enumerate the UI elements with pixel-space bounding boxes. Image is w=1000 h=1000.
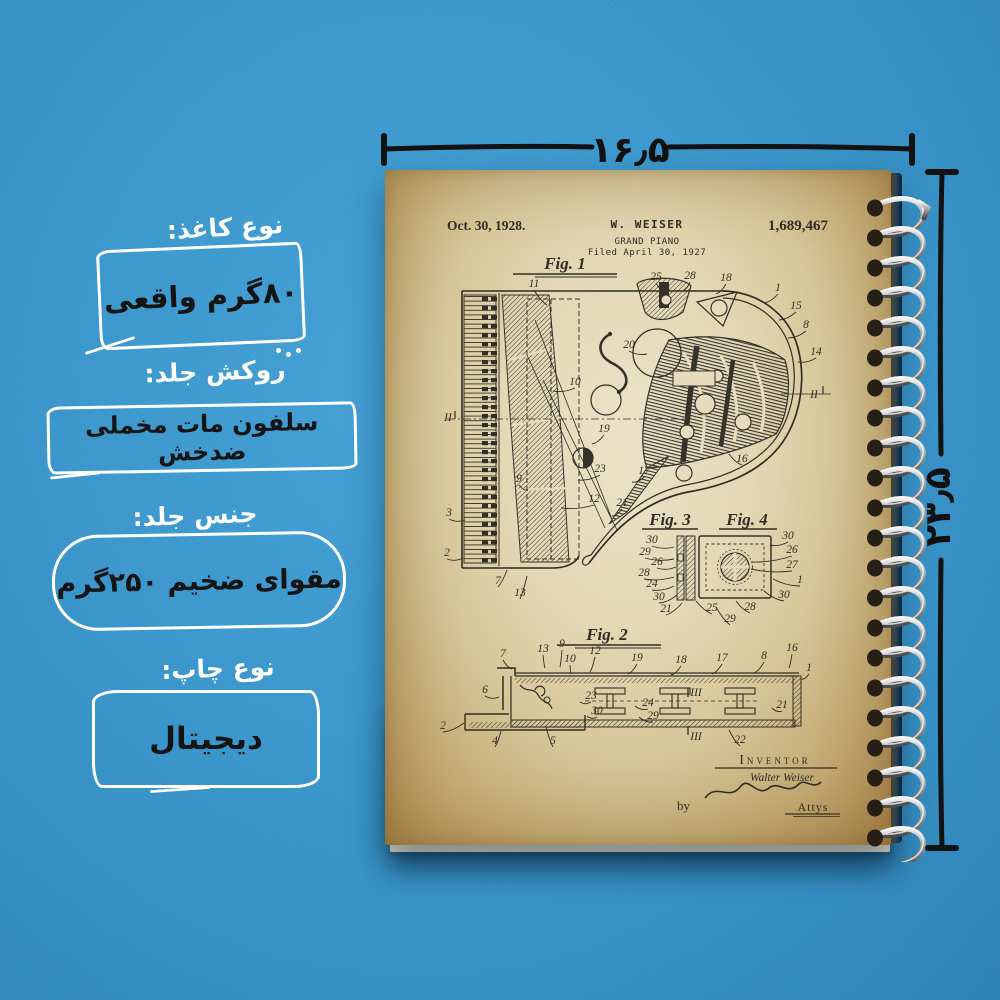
- patent-date: Oct. 30, 1928.: [447, 218, 525, 233]
- svg-text:7: 7: [495, 575, 502, 587]
- svg-text:26: 26: [786, 544, 798, 556]
- svg-text:12: 12: [588, 493, 600, 505]
- svg-text:11: 11: [529, 278, 540, 290]
- svg-text:III: III: [689, 687, 703, 699]
- patent-header: Oct. 30, 1928. W. WEISER 1,689,467 GRAND…: [447, 218, 829, 258]
- attys-label: Attys: [797, 800, 828, 814]
- attorney-signature: [705, 782, 821, 798]
- patent-number: 1,689,467: [768, 218, 829, 234]
- svg-text:6: 6: [482, 684, 488, 696]
- patent-title: GRAND PIANO: [614, 237, 679, 247]
- height-value: ۲۳٫۵: [918, 467, 959, 546]
- svg-text:30: 30: [777, 589, 790, 601]
- svg-text:13: 13: [537, 643, 549, 655]
- svg-text:23: 23: [585, 690, 597, 702]
- svg-text:25: 25: [650, 271, 662, 283]
- lamination-heading: روکش جلد:: [140, 354, 291, 388]
- svg-text:30: 30: [645, 534, 658, 546]
- svg-text:7: 7: [500, 648, 507, 660]
- svg-text:30: 30: [652, 591, 665, 603]
- print-type-heading: نوع چاپ:: [158, 652, 279, 685]
- pin-block-hatch: [502, 295, 569, 562]
- svg-text:28: 28: [684, 270, 696, 282]
- width-dimension: ۱۶٫۵: [368, 118, 928, 182]
- print-type-frame: دیجیتال: [92, 690, 320, 788]
- patent-filed-date: Filed April 30, 1927: [588, 248, 706, 258]
- soundboard-hole-medium: [591, 385, 621, 415]
- svg-text:15: 15: [790, 300, 802, 312]
- paper-type-box: ۸۰گرم واقعی: [96, 242, 306, 351]
- by-label: by: [677, 798, 691, 813]
- svg-text:21: 21: [660, 603, 672, 615]
- svg-text:24: 24: [642, 697, 654, 709]
- svg-text:II: II: [809, 389, 819, 401]
- svg-text:27: 27: [786, 559, 799, 571]
- notebook-cover: Oct. 30, 1928. W. WEISER 1,689,467 GRAND…: [385, 170, 893, 845]
- svg-text:2: 2: [440, 720, 446, 732]
- svg-text:3: 3: [445, 507, 452, 519]
- svg-text:21: 21: [616, 497, 628, 509]
- inventor-label: Inventor: [739, 752, 810, 767]
- svg-text:12: 12: [589, 645, 601, 657]
- svg-text:10: 10: [569, 376, 581, 388]
- svg-text:17: 17: [638, 465, 651, 477]
- svg-text:13: 13: [514, 587, 526, 599]
- fig4-label: Fig. 4: [725, 510, 768, 529]
- svg-text:2: 2: [444, 547, 450, 559]
- svg-text:29: 29: [639, 546, 651, 558]
- inventor-signature-block: Inventor Walter Weiser by Attys: [677, 752, 840, 817]
- svg-text:19: 19: [598, 423, 610, 435]
- figure-2-cross-section: Fig. 2: [440, 625, 812, 747]
- figure-3-and-4-details: Fig. 3 Fig. 4 30292628243021252928302627…: [638, 510, 803, 625]
- svg-text:28: 28: [744, 601, 756, 613]
- paper-type-heading: نوع کاغذ:: [149, 209, 300, 246]
- svg-text:9: 9: [516, 473, 522, 485]
- svg-text:1: 1: [775, 282, 781, 294]
- svg-text:23: 23: [594, 463, 606, 475]
- svg-text:8: 8: [803, 319, 809, 331]
- patent-inventor-header: W. WEISER: [610, 218, 683, 231]
- svg-text:30: 30: [781, 530, 794, 542]
- cover-material-heading: جنس جلد:: [120, 498, 271, 532]
- fig3-label: Fig. 3: [648, 510, 691, 529]
- svg-text:5: 5: [550, 735, 556, 747]
- figure-1-piano-top-view: Fig. 1: [443, 254, 831, 599]
- svg-text:16: 16: [786, 642, 798, 654]
- notebook-product-image: Oct. 30, 1928. W. WEISER 1,689,467 GRAND…: [0, 0, 1000, 1000]
- svg-text:8: 8: [761, 650, 767, 662]
- svg-text:17: 17: [716, 652, 729, 664]
- svg-text:14: 14: [810, 346, 822, 358]
- i-beam-braces: [595, 688, 755, 714]
- svg-text:II: II: [443, 412, 453, 424]
- svg-text:29: 29: [647, 710, 659, 722]
- svg-text:26: 26: [651, 556, 663, 568]
- fig1-label: Fig. 1: [543, 254, 586, 273]
- svg-text:18: 18: [675, 654, 687, 666]
- keyboard-black-keys: [482, 295, 497, 563]
- width-value: ۱۶٫۵: [590, 130, 669, 171]
- svg-text:29: 29: [724, 613, 736, 625]
- lamination-box: سلفون مات مخملی ضدخش: [46, 401, 357, 474]
- svg-text:4: 4: [492, 735, 498, 747]
- svg-text:19: 19: [631, 652, 643, 664]
- svg-text:10: 10: [564, 653, 576, 665]
- patent-print-grand-piano: Oct. 30, 1928. W. WEISER 1,689,467 GRAND…: [385, 170, 893, 845]
- svg-text:20: 20: [623, 339, 635, 351]
- svg-text:18: 18: [720, 272, 732, 284]
- height-dimension: ۲۳٫۵: [908, 158, 988, 864]
- svg-text:24: 24: [646, 578, 658, 590]
- svg-text:III: III: [689, 731, 703, 743]
- cover-material-bubble: مقوای ضخیم ۲۵۰گرم: [51, 530, 347, 631]
- fig2-label: Fig. 2: [585, 625, 628, 644]
- svg-text:1: 1: [806, 662, 812, 674]
- svg-text:21: 21: [776, 699, 788, 711]
- svg-text:16: 16: [736, 453, 748, 465]
- svg-text:22: 22: [734, 734, 746, 746]
- svg-text:9: 9: [559, 638, 565, 650]
- svg-text:30: 30: [590, 705, 603, 717]
- svg-text:1: 1: [797, 574, 803, 586]
